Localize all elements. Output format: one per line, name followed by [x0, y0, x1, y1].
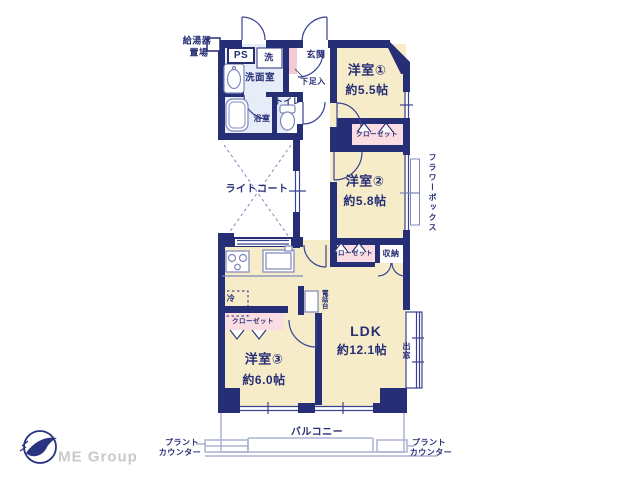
- ldk-size: 約12.1帖: [337, 344, 387, 356]
- closet2-label: クローゼット: [331, 251, 373, 258]
- western1-name: 洋室①: [348, 64, 387, 77]
- closet3-label: クローゼット: [232, 319, 274, 326]
- entrance-label: 玄関: [306, 51, 325, 60]
- toilet-label: トイレ: [274, 97, 301, 106]
- phone-stand-label: 電話台: [320, 289, 327, 309]
- western3-size: 約6.0帖: [242, 374, 285, 386]
- bird-icon: [26, 438, 57, 457]
- plant-counter-left-line1: プラント: [165, 439, 199, 447]
- plant-counter-right-line1: プラント: [412, 439, 446, 447]
- balcony-label: バルコニー: [291, 428, 343, 438]
- stove-icon: [226, 251, 249, 272]
- western2-name: 洋室②: [346, 175, 385, 188]
- floor-plan-drawing: [0, 0, 640, 480]
- pipe-space-label: PS: [234, 51, 248, 61]
- water-heater-label-line2: 置場: [189, 49, 208, 58]
- washroom-label: 洗面室: [245, 73, 275, 83]
- refrigerator-label: 冷: [227, 295, 236, 303]
- plant-counter-right-line2: カウンター: [410, 449, 453, 457]
- closet1-label: クローゼット: [356, 132, 398, 139]
- flower-box-label: フラワーボックス: [428, 153, 436, 233]
- toilet-icon: [280, 105, 295, 130]
- light-court-label: ライトコート: [226, 185, 289, 195]
- plant-counter-right: [377, 440, 407, 452]
- plant-counter-left-line2: カウンター: [159, 449, 202, 457]
- shoe-box-label: 下足入: [300, 78, 326, 86]
- bathtub-icon: [226, 99, 248, 131]
- floor-plan: 給湯器 置場 PS 洗 玄関 下足入 洗面室 浴室 トイレ 洋室① 約5.5帖 …: [0, 0, 640, 480]
- phone-stand-niche: [305, 291, 318, 312]
- bay-window-label: 出窓: [402, 342, 410, 360]
- me-group-logo: [20, 431, 57, 463]
- western1-size: 約5.5帖: [345, 84, 388, 96]
- water-heater-label-line1: 給湯器: [183, 37, 212, 46]
- bathroom-label: 浴室: [254, 115, 271, 123]
- western3-name: 洋室③: [245, 353, 284, 366]
- western2-size: 約5.8帖: [343, 195, 386, 207]
- ldk-name: LDK: [350, 324, 382, 338]
- logo-text: ME Group: [58, 450, 138, 465]
- kitchen-sink-icon: [263, 246, 294, 272]
- washbasin-icon: [224, 64, 244, 93]
- storage-label: 収納: [383, 250, 400, 258]
- laundry-label: 洗: [264, 54, 274, 63]
